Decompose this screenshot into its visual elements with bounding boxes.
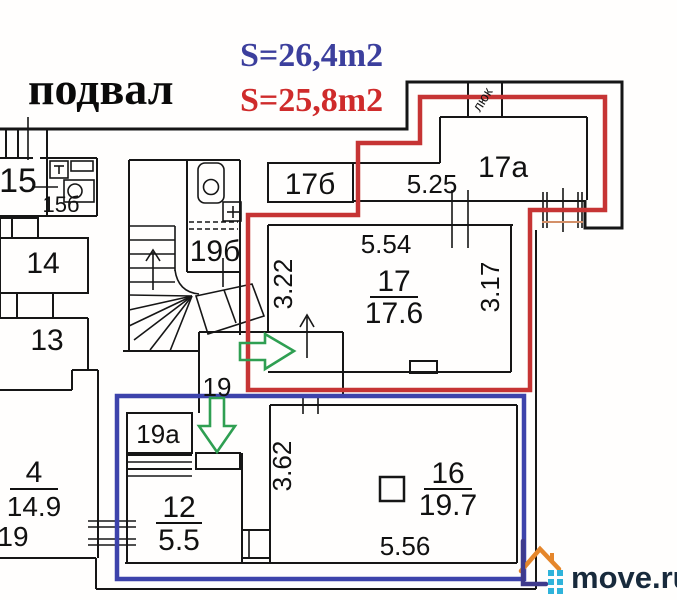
room-label-17-fraction: 17 17.6 <box>365 265 423 330</box>
floorplan-page: подвал S=26,4m2 S=25,8m2 15 15б 14 13 4 … <box>0 0 677 600</box>
room-label-14: 14 <box>26 247 59 280</box>
room-label-17a: 17а <box>478 151 528 184</box>
entry-up-arrow <box>300 315 314 358</box>
room-area-16: 19.7 <box>419 489 477 522</box>
stairs-up-arrow <box>146 250 160 290</box>
red-area-outline <box>248 97 605 390</box>
room-label-17b: 17б <box>285 168 336 201</box>
dim-3-22: 3.22 <box>268 259 298 310</box>
room-label-19-left: 19 <box>0 521 29 552</box>
page-title: подвал <box>28 63 174 114</box>
dim-5-56: 5.56 <box>380 531 431 561</box>
room-label-19b: 19б <box>190 235 241 268</box>
column-symbol <box>380 477 404 501</box>
moveru-watermark[interactable]: move.ru <box>521 541 677 595</box>
room-label-15: 15 <box>0 162 37 200</box>
room-label-4-fraction: 4 14.9 <box>7 456 62 522</box>
room-label-16-fraction: 16 19.7 <box>419 457 477 522</box>
room-label-19-corridor: 19 <box>203 372 232 402</box>
logo-text: move.ru <box>571 560 677 595</box>
room-label-13: 13 <box>30 324 63 357</box>
room-label-17: 17 <box>377 265 410 298</box>
room-area-4: 14.9 <box>7 491 62 522</box>
room-label-4: 4 <box>26 456 43 489</box>
blue-area-label: S=26,4m2 <box>240 37 383 74</box>
room-label-16: 16 <box>431 457 464 490</box>
room-label-12: 12 <box>162 491 195 524</box>
room-label-12-fraction: 12 5.5 <box>156 491 202 557</box>
dim-3-17: 3.17 <box>475 262 505 313</box>
dim-5-25: 5.25 <box>407 169 458 199</box>
room-label-19a: 19а <box>136 419 180 449</box>
room-area-12: 5.5 <box>158 524 200 557</box>
dim-3-62: 3.62 <box>267 441 297 492</box>
room-area-17: 17.6 <box>365 297 423 330</box>
text-labels: подвал S=26,4m2 S=25,8m2 15 15б 14 13 4 … <box>0 37 528 561</box>
red-area-label: S=25,8m2 <box>240 82 383 119</box>
room-label-15b: 15б <box>42 192 79 217</box>
floorplan-svg: подвал S=26,4m2 S=25,8m2 15 15б 14 13 4 … <box>0 0 677 600</box>
entrance-arrow-down-icon <box>199 398 235 452</box>
dim-5-54: 5.54 <box>361 229 412 259</box>
logo-pixel-squares-icon <box>548 570 563 594</box>
